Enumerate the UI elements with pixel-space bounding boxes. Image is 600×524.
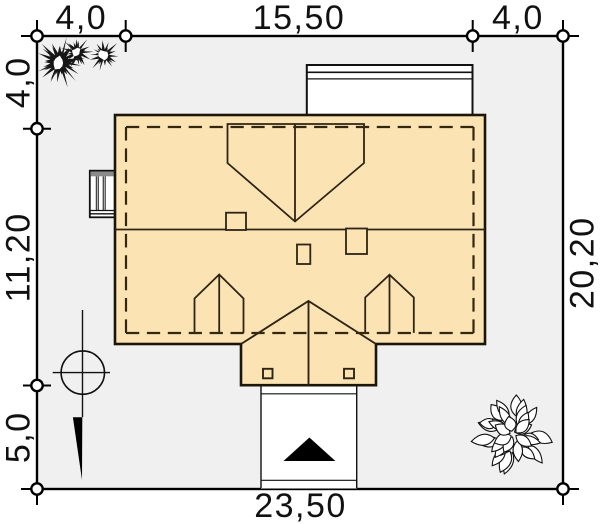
svg-text:11,20: 11,20 — [0, 212, 38, 302]
svg-text:4,0: 4,0 — [0, 56, 38, 108]
svg-text:4,0: 4,0 — [55, 0, 107, 37]
svg-text:20,20: 20,20 — [564, 217, 600, 310]
svg-text:4,0: 4,0 — [492, 0, 544, 37]
svg-text:5,0: 5,0 — [0, 411, 38, 463]
svg-text:23,50: 23,50 — [254, 487, 347, 524]
svg-text:15,50: 15,50 — [253, 0, 346, 37]
